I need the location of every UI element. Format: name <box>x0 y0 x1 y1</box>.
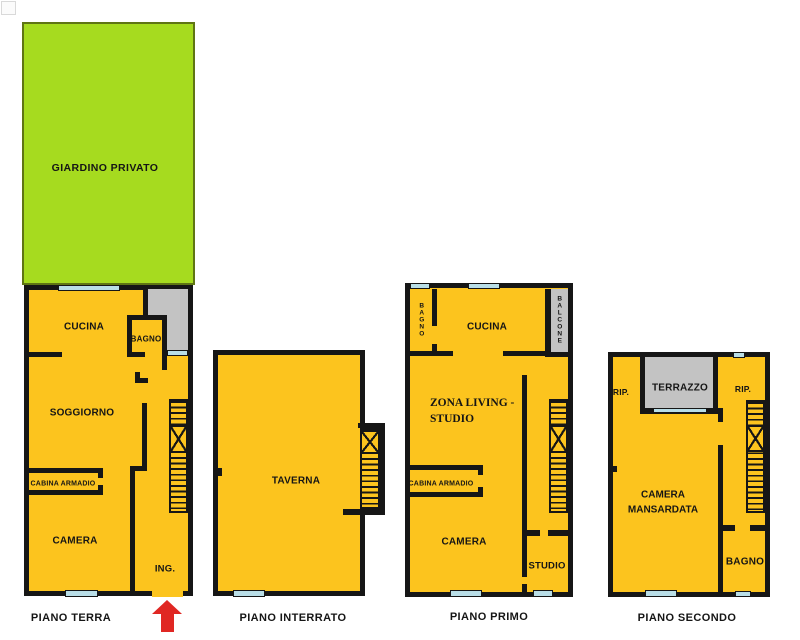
window <box>410 283 430 289</box>
stair-cross <box>748 425 763 452</box>
room-label-camera-mansardata: CAMERA MANSARDATA <box>628 489 698 518</box>
wall <box>135 378 148 383</box>
window <box>735 591 751 597</box>
entrance-arrow-shaft <box>161 613 174 632</box>
wall <box>723 525 735 531</box>
giardino-privato-area <box>22 22 195 285</box>
terrace-door <box>653 408 707 413</box>
wall <box>718 445 723 592</box>
staircase <box>360 428 380 509</box>
wall <box>432 289 437 326</box>
wall <box>713 357 718 410</box>
room-label-cabina-armadio: CABINA ARMADIO <box>409 481 474 488</box>
window <box>645 590 677 597</box>
room-label-balcone: BALCONE <box>556 296 563 345</box>
window <box>450 590 482 597</box>
stair-cross <box>551 425 566 453</box>
piano-interrato-outline <box>213 350 365 596</box>
staircase <box>746 400 765 513</box>
stair-cross <box>171 425 186 453</box>
room-label-bagno: BAGNO <box>131 335 162 344</box>
stair-treads <box>171 401 186 511</box>
room-label-zona-living: ZONA LIVING - STUDIO <box>430 396 514 427</box>
zona-living-line1: ZONA LIVING - <box>430 396 514 412</box>
wall <box>405 492 483 497</box>
wall <box>24 468 103 473</box>
stair-treads <box>551 401 566 511</box>
wall <box>522 375 527 577</box>
floorplan-canvas: GIARDINO PRIVATO BAGNO CUCINA SOGGIORNO … <box>0 0 800 640</box>
scan-artifact <box>1 1 16 15</box>
wall <box>718 408 723 422</box>
wall <box>98 485 103 490</box>
camera-mansardata-line1: CAMERA <box>628 489 698 504</box>
room-label-bagno: BAGNO <box>418 303 425 338</box>
staircase <box>169 399 188 513</box>
room-label-soggiorno: SOGGIORNO <box>50 408 115 419</box>
window <box>58 285 120 291</box>
room-label-giardino: GIARDINO PRIVATO <box>52 162 159 174</box>
wall <box>750 525 765 531</box>
zona-living-line2: STUDIO <box>430 412 514 428</box>
floor-caption-piano-secondo: PIANO SECONDO <box>638 612 737 624</box>
window <box>533 590 553 597</box>
wall <box>142 403 147 467</box>
wall <box>522 584 527 592</box>
wall <box>143 289 148 317</box>
window <box>733 352 745 358</box>
floor-caption-piano-primo: PIANO PRIMO <box>450 611 528 623</box>
entrance-arrow <box>152 600 182 614</box>
entrance-opening <box>152 591 183 597</box>
wall <box>24 490 103 495</box>
room-label-bagno: BAGNO <box>726 557 764 568</box>
room-label-taverna: TAVERNA <box>272 476 320 487</box>
wall <box>478 487 483 492</box>
room-label-camera: CAMERA <box>441 537 486 548</box>
room-label-studio: STUDIO <box>528 561 565 572</box>
stair-cross <box>362 430 378 454</box>
room-label-cabina-armadio: CABINA ARMADIO <box>31 481 96 488</box>
wall <box>343 509 385 515</box>
staircase <box>549 399 568 513</box>
room-label-cucina: CUCINA <box>64 322 104 333</box>
room-label-ingresso: ING. <box>155 564 175 575</box>
stair-treads <box>748 402 763 511</box>
wall <box>613 466 617 472</box>
floor-caption-piano-terra: PIANO TERRA <box>31 612 111 624</box>
wall <box>548 530 568 536</box>
window <box>65 590 98 597</box>
room-label-rip-right: RIP. <box>735 384 751 394</box>
window <box>167 350 188 356</box>
wall <box>640 357 645 410</box>
floor-caption-piano-interrato: PIANO INTERRATO <box>239 612 346 624</box>
wall <box>218 468 222 476</box>
wall <box>98 473 103 478</box>
window <box>468 283 500 289</box>
room-label-rip-left: RIP. <box>613 387 629 397</box>
room-label-terrazzo: TERRAZZO <box>652 383 708 394</box>
wall <box>478 470 483 475</box>
wall <box>405 465 483 470</box>
door-opening <box>145 352 162 357</box>
room-label-camera: CAMERA <box>52 536 97 547</box>
wall <box>24 352 62 357</box>
wall <box>405 351 453 356</box>
wall <box>545 289 551 352</box>
wall <box>527 530 540 536</box>
wall <box>380 423 385 514</box>
wall <box>545 352 573 357</box>
wall <box>162 357 167 370</box>
window <box>233 590 265 597</box>
camera-mansardata-line2: MANSARDATA <box>628 503 698 518</box>
wall <box>130 471 135 592</box>
room-label-cucina: CUCINA <box>467 322 507 333</box>
